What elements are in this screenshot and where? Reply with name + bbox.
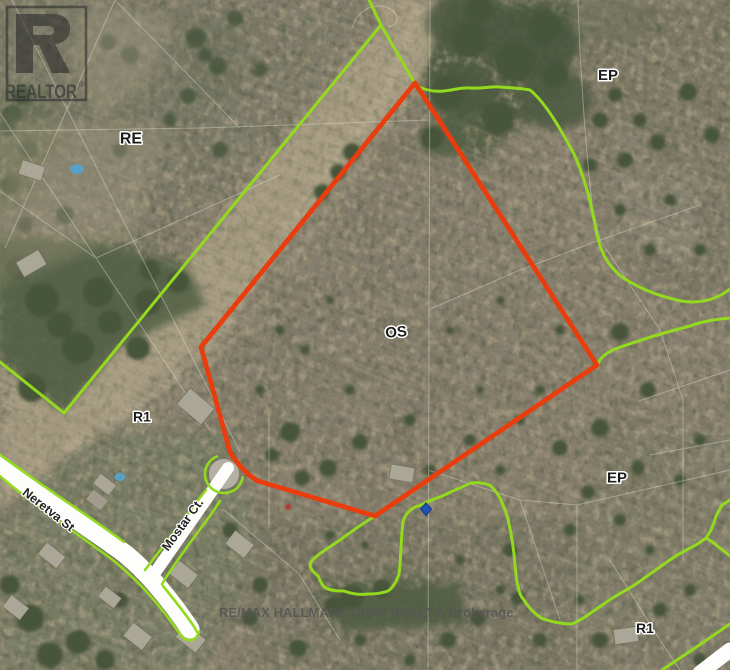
svg-text:RE/MAX HALLMARK CHAY REALTY, B: RE/MAX HALLMARK CHAY REALTY, Brokerage: [219, 605, 514, 620]
svg-text:®: ®: [79, 80, 85, 89]
svg-text:EP: EP: [598, 67, 618, 84]
svg-text:RE: RE: [120, 131, 143, 148]
svg-text:EP: EP: [607, 470, 627, 487]
svg-text:R1: R1: [133, 409, 151, 425]
svg-text:R1: R1: [636, 620, 654, 636]
svg-text:OS: OS: [385, 323, 408, 342]
svg-text:REALTOR: REALTOR: [5, 81, 77, 103]
